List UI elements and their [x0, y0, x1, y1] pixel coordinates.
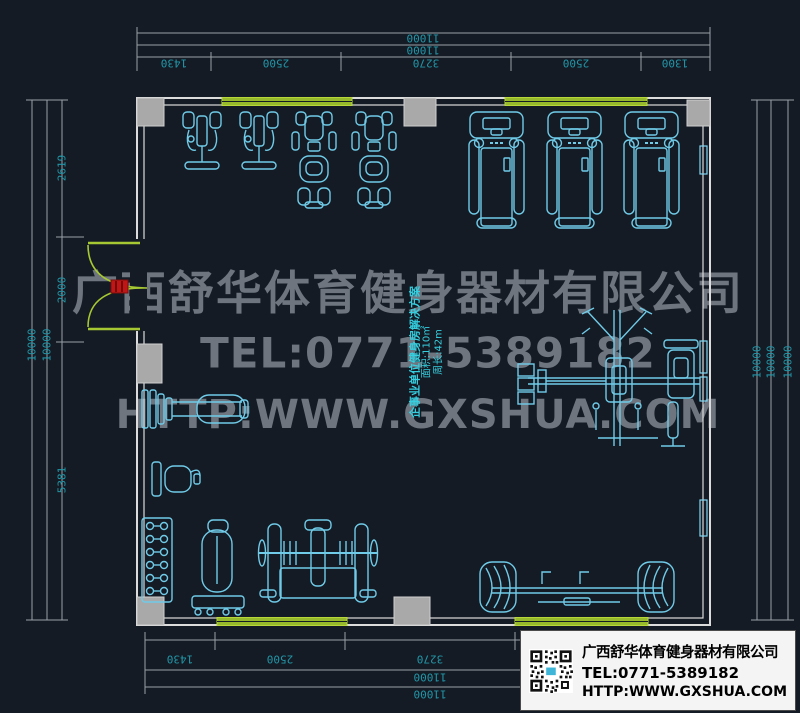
standing-unit-icon — [192, 520, 244, 615]
multi-station-trainer-icon — [518, 308, 700, 446]
qr-code — [529, 640, 573, 702]
dim-right-total-3: 10000 — [782, 345, 795, 378]
dim-top-seg-2: 2500 — [263, 57, 290, 70]
dim-bottom-total-outer: 11000 — [413, 688, 446, 701]
recumbent-bike-icon — [292, 112, 336, 208]
dim-left-total-1: 10000 — [26, 328, 39, 361]
info-box-url: HTTP:WWW.GXSHUA.COM — [582, 684, 787, 700]
chair-icon — [152, 462, 200, 496]
treadmill-icon — [547, 112, 602, 228]
bench-press-rack-icon — [258, 520, 378, 602]
dim-left-seg-3: 5381 — [56, 467, 69, 494]
info-box-company: 广西舒华体育健身器材有限公司 — [582, 641, 787, 662]
dim-left-seg-2: 2000 — [56, 277, 69, 304]
dim-left-total-2: 10000 — [41, 328, 54, 361]
dim-top-seg-3: 3270 — [413, 57, 440, 70]
shoulder-press-machine-icon — [183, 112, 221, 169]
recumbent-bike-icon — [352, 112, 396, 208]
floor-plan-drawing — [0, 0, 800, 713]
dumbbell-rack-icon — [142, 518, 172, 602]
dual-end-bench-station-icon — [480, 562, 674, 612]
annotation-title: 企事业单位健身房解决方案 — [408, 286, 421, 418]
dim-right-total-2: 10000 — [765, 345, 778, 378]
dim-right-total-1: 10000 — [751, 345, 764, 378]
annotation-perimeter: 周长:42m — [434, 286, 446, 418]
dim-top-seg-5: 1300 — [662, 57, 689, 70]
dim-top-seg-4: 2500 — [563, 57, 590, 70]
shoulder-press-machine-icon — [240, 112, 278, 169]
dim-bottom-seg-2: 2500 — [267, 653, 294, 666]
dim-top-seg-1: 1430 — [161, 57, 188, 70]
annotation-area: 面积:110㎡ — [422, 286, 434, 418]
plan-annotation: 企事业单位健身房解决方案 面积:110㎡ 周长:42m — [408, 286, 445, 418]
plate-loaded-bench-icon — [142, 390, 248, 428]
treadmill-icon — [469, 112, 524, 228]
dim-top-total-inner: 11000 — [406, 44, 439, 57]
dim-left-seg-1: 2619 — [56, 155, 69, 182]
dim-bottom-total-inner: 11000 — [413, 671, 446, 684]
dim-bottom-seg-1: 1430 — [167, 653, 194, 666]
cad-floor-plan: 广西舒华体育健身器材有限公司 TEL:0771-5389182 HTTP:WWW… — [0, 0, 800, 713]
treadmill-icon — [624, 112, 679, 228]
company-info-box: 广西舒华体育健身器材有限公司 TEL:0771-5389182 HTTP:WWW… — [520, 630, 796, 711]
door-handle-red — [111, 280, 128, 293]
dim-bottom-seg-3: 3270 — [417, 653, 444, 666]
info-box-tel: TEL:0771-5389182 — [582, 664, 787, 682]
